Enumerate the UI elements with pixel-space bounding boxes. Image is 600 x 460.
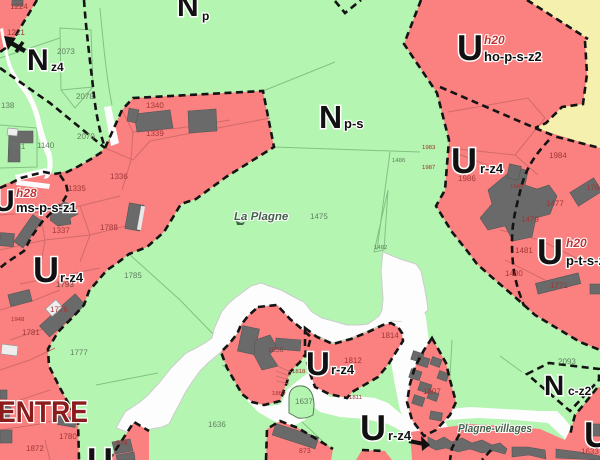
svg-text:U: U bbox=[537, 231, 563, 272]
svg-text:p-t-s-z: p-t-s-z bbox=[566, 253, 600, 268]
svg-text:c-z2: c-z2 bbox=[568, 384, 592, 398]
svg-text:1777: 1777 bbox=[70, 348, 88, 357]
svg-text:2078: 2078 bbox=[76, 92, 94, 101]
svg-text:p: p bbox=[202, 9, 209, 23]
svg-text:1480: 1480 bbox=[505, 269, 523, 278]
svg-text:ho-p-s-z2: ho-p-s-z2 bbox=[484, 49, 542, 64]
svg-text:1987: 1987 bbox=[422, 164, 436, 171]
svg-text:r-z4: r-z4 bbox=[480, 161, 504, 176]
svg-text:1814: 1814 bbox=[381, 331, 399, 340]
svg-text:1636: 1636 bbox=[208, 420, 226, 429]
svg-text:1337: 1337 bbox=[52, 226, 70, 235]
svg-text:ms-p-s-z1: ms-p-s-z1 bbox=[16, 200, 77, 215]
svg-text:1776: 1776 bbox=[50, 305, 68, 314]
svg-text:U: U bbox=[87, 440, 113, 460]
svg-text:r-z4: r-z4 bbox=[388, 428, 412, 443]
svg-text:1780: 1780 bbox=[59, 432, 77, 441]
svg-text:1221: 1221 bbox=[7, 28, 25, 37]
svg-text:1482: 1482 bbox=[374, 244, 388, 251]
svg-text:1224: 1224 bbox=[10, 2, 28, 11]
svg-text:1339: 1339 bbox=[146, 129, 164, 138]
svg-text:1818: 1818 bbox=[292, 368, 306, 375]
svg-text:1649: 1649 bbox=[510, 183, 524, 190]
svg-text:1633: 1633 bbox=[581, 447, 599, 456]
svg-text:La Plagne: La Plagne bbox=[234, 211, 289, 223]
svg-text:1986: 1986 bbox=[458, 174, 476, 183]
svg-text:h20: h20 bbox=[484, 33, 505, 47]
svg-text:1807: 1807 bbox=[423, 387, 441, 396]
svg-text:1481: 1481 bbox=[515, 246, 533, 255]
svg-text:p-s: p-s bbox=[344, 116, 364, 131]
svg-text:1479: 1479 bbox=[521, 215, 539, 224]
svg-text:1637: 1637 bbox=[295, 397, 313, 406]
svg-text:1781: 1781 bbox=[22, 328, 40, 337]
svg-text:1788: 1788 bbox=[100, 223, 118, 232]
svg-text:U: U bbox=[0, 185, 15, 218]
svg-text:2073: 2073 bbox=[57, 47, 75, 56]
svg-text:1872: 1872 bbox=[26, 444, 44, 453]
svg-text:1860: 1860 bbox=[272, 390, 286, 397]
svg-text:ENTRE: ENTRE bbox=[0, 396, 88, 429]
svg-text:N: N bbox=[177, 0, 199, 23]
svg-text:z4: z4 bbox=[51, 60, 64, 74]
svg-text:231: 231 bbox=[12, 142, 26, 151]
svg-text:U: U bbox=[457, 27, 483, 68]
svg-text:N: N bbox=[544, 370, 564, 401]
svg-text:1812: 1812 bbox=[344, 356, 362, 365]
svg-text:1785: 1785 bbox=[124, 271, 142, 280]
svg-text:1477: 1477 bbox=[546, 199, 564, 208]
svg-text:2070: 2070 bbox=[77, 132, 95, 141]
svg-text:2093: 2093 bbox=[558, 357, 576, 366]
svg-text:h20: h20 bbox=[566, 236, 587, 250]
svg-text:1983: 1983 bbox=[422, 144, 436, 151]
svg-text:1335: 1335 bbox=[68, 184, 86, 193]
svg-text:1856: 1856 bbox=[268, 347, 284, 354]
svg-text:U: U bbox=[360, 407, 386, 448]
svg-text:1140: 1140 bbox=[37, 141, 55, 150]
svg-text:1811: 1811 bbox=[349, 394, 363, 401]
svg-text:1793: 1793 bbox=[56, 280, 74, 289]
svg-text:1475: 1475 bbox=[310, 212, 328, 221]
svg-text:1336: 1336 bbox=[110, 172, 128, 181]
svg-text:138: 138 bbox=[1, 101, 15, 110]
svg-text:N: N bbox=[27, 44, 49, 77]
svg-text:176: 176 bbox=[586, 183, 600, 192]
svg-text:Plagne-villages: Plagne-villages bbox=[458, 423, 532, 435]
svg-text:1771: 1771 bbox=[550, 281, 568, 290]
svg-text:U: U bbox=[306, 345, 330, 382]
svg-text:1948: 1948 bbox=[11, 316, 25, 323]
svg-text:h28: h28 bbox=[16, 186, 37, 200]
svg-text:873: 873 bbox=[299, 448, 311, 455]
svg-text:1486: 1486 bbox=[392, 157, 406, 164]
svg-text:1340: 1340 bbox=[146, 101, 164, 110]
svg-text:N: N bbox=[319, 99, 342, 135]
svg-text:1984: 1984 bbox=[549, 151, 567, 160]
svg-text:878: 878 bbox=[116, 440, 128, 447]
